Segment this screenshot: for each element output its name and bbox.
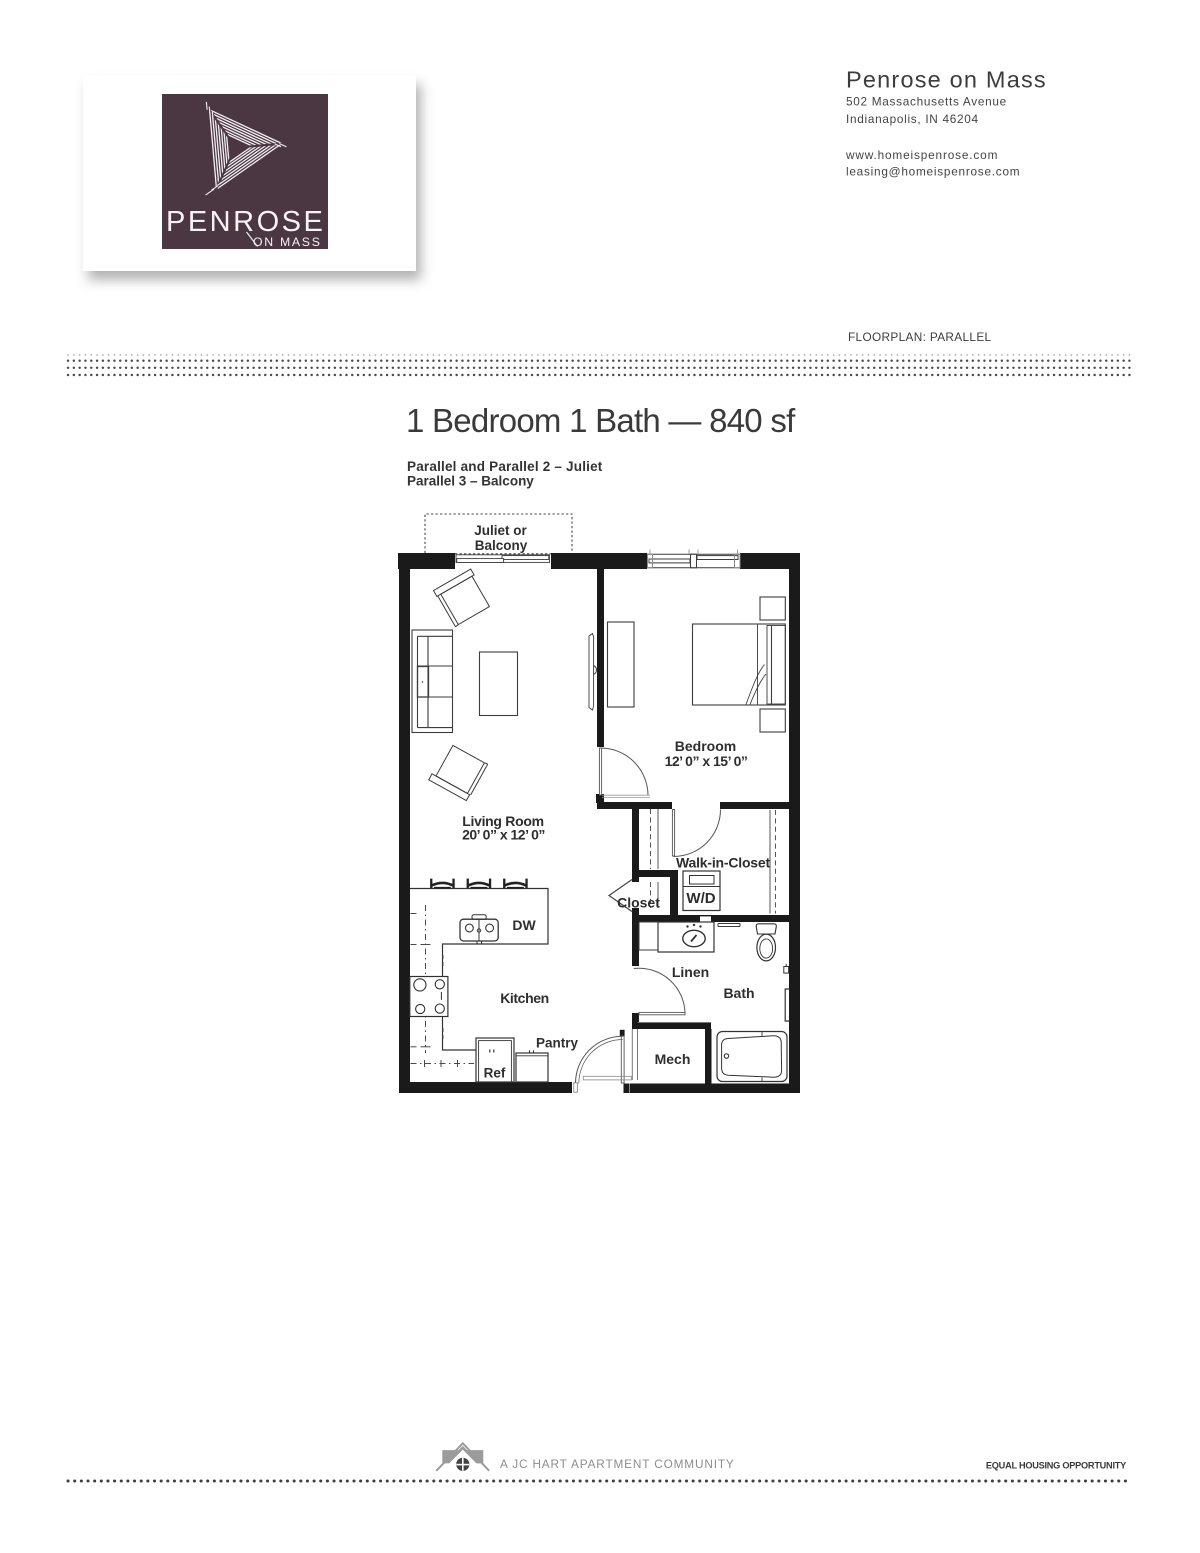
svg-text:Indianapolis, IN 46204: Indianapolis, IN 46204 bbox=[846, 112, 979, 126]
svg-text:PENROSE: PENROSE bbox=[166, 206, 325, 238]
svg-text:Penrose on Mass: Penrose on Mass bbox=[846, 67, 1047, 93]
svg-text:Kitchen: Kitchen bbox=[500, 990, 549, 1006]
svg-text:1 Bedroom 1 Bath — 840 sf: 1 Bedroom 1 Bath — 840 sf bbox=[406, 402, 796, 439]
svg-text:Walk-in-Closet: Walk-in-Closet bbox=[676, 855, 770, 871]
svg-text:Bedroom: Bedroom bbox=[675, 738, 736, 754]
svg-text:Linen: Linen bbox=[672, 964, 709, 980]
svg-text:leasing@homeispenrose.com: leasing@homeispenrose.com bbox=[846, 165, 1020, 179]
svg-text:A JC HART APARTMENT COMMUNITY: A JC HART APARTMENT COMMUNITY bbox=[500, 1457, 735, 1471]
svg-text:www.homeispenrose.com: www.homeispenrose.com bbox=[845, 148, 998, 162]
svg-text:EQUAL HOUSING OPPORTUNITY: EQUAL HOUSING OPPORTUNITY bbox=[986, 1461, 1126, 1471]
svg-text:Mech: Mech bbox=[655, 1051, 691, 1067]
svg-text:Closet: Closet bbox=[617, 895, 660, 911]
svg-text:W/D: W/D bbox=[686, 890, 715, 907]
svg-text:Parallel and Parallel 2 – Juli: Parallel and Parallel 2 – Juliet bbox=[407, 459, 603, 474]
svg-text:Parallel 3 – Balcony: Parallel 3 – Balcony bbox=[407, 474, 534, 489]
svg-text:ON MASS: ON MASS bbox=[253, 235, 322, 249]
svg-text:502 Massachusetts Avenue: 502 Massachusetts Avenue bbox=[846, 95, 1007, 109]
svg-text:12’ 0” x 15’ 0”: 12’ 0” x 15’ 0” bbox=[665, 753, 748, 769]
svg-text:FLOORPLAN: PARALLEL: FLOORPLAN: PARALLEL bbox=[848, 330, 992, 344]
svg-text:DW: DW bbox=[512, 917, 536, 933]
svg-text:Balcony: Balcony bbox=[475, 538, 528, 553]
svg-text:20’ 0” x 12’ 0”: 20’ 0” x 12’ 0” bbox=[462, 827, 545, 843]
svg-text:Ref: Ref bbox=[484, 1066, 506, 1081]
svg-text:Pantry: Pantry bbox=[536, 1036, 579, 1051]
svg-text:Juliet or: Juliet or bbox=[474, 523, 527, 538]
svg-text:Bath: Bath bbox=[723, 985, 754, 1001]
